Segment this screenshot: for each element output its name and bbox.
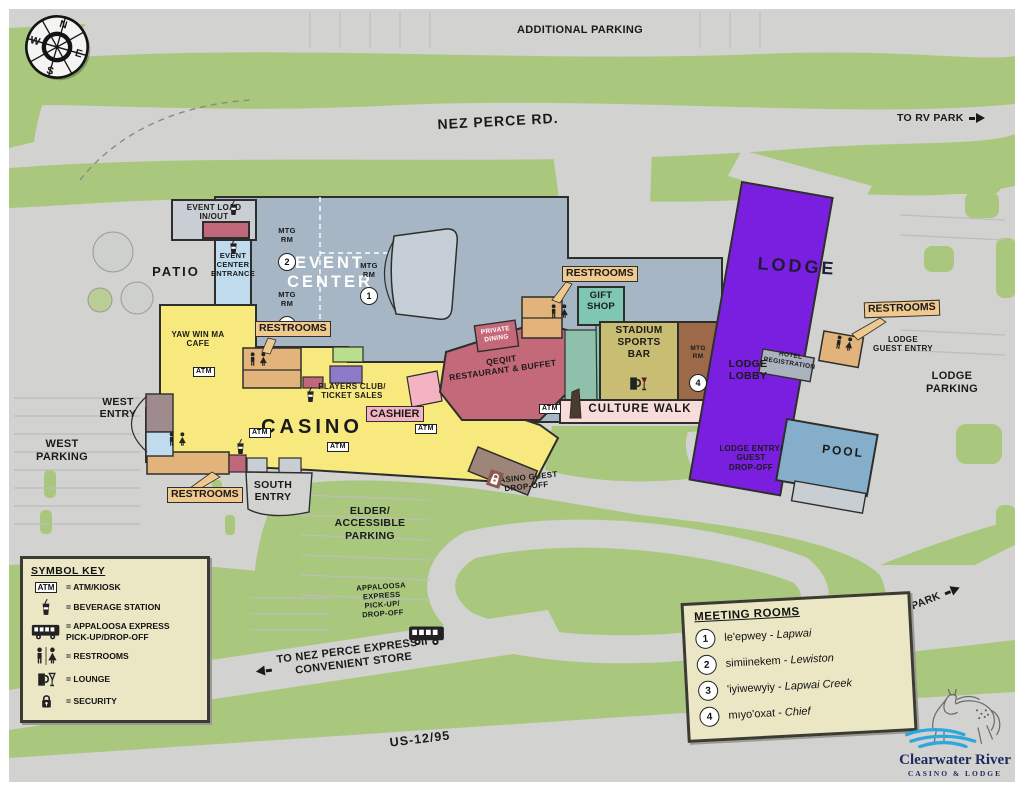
- key-text-security: = SECURITY: [66, 696, 117, 707]
- label-hotel-registration: HOTEL REGISTRATION: [763, 348, 817, 371]
- label-restrooms-center: RESTROOMS: [562, 266, 638, 282]
- logo-title: Clearwater River: [893, 753, 1017, 768]
- restrooms-icon: [832, 334, 856, 353]
- atm-kiosk: ATM: [327, 442, 349, 452]
- mtg-rm-4-number: 4: [689, 374, 707, 392]
- atm-kiosk: ATM: [415, 424, 437, 434]
- room-number-badge: 4: [699, 706, 720, 727]
- room-number-badge: 2: [696, 654, 717, 675]
- room-place-text: Lewiston: [790, 652, 834, 666]
- symbol-key-title: SYMBOL KEY: [31, 565, 199, 577]
- beverage-icon: [235, 438, 246, 455]
- label-additional-parking: ADDITIONAL PARKING: [517, 24, 643, 37]
- restrooms-icon: [166, 432, 188, 447]
- clearwater-logo: Clearwater River CASINO & LODGE: [893, 686, 1017, 778]
- label-private-dining: PRIVATE DINING: [480, 325, 511, 344]
- label-west-parking: WEST PARKING: [36, 438, 88, 464]
- room-place-text: Lapwai: [776, 627, 811, 641]
- atm-kiosk: ATM: [249, 428, 271, 438]
- label-restrooms-lodge: RESTROOMS: [864, 300, 940, 318]
- label-qeqiit-restaurant: QEQIIT RESTAURANT & BUFFET: [447, 348, 557, 383]
- key-row-lounge: = LOUNGE: [31, 670, 199, 688]
- label-lodge: LODGE: [757, 253, 837, 280]
- room-place-text: Chief: [785, 705, 811, 718]
- meeting-rooms-legend: MEETING ROOMS 1 le'epwey - Lapwai 2 simi…: [680, 591, 917, 743]
- room-name: simiinekem - Lewiston: [725, 652, 834, 670]
- label-lodge-lobby: LODGE LOBBY: [729, 358, 768, 383]
- room-place-text: Lapwai Creek: [784, 677, 852, 693]
- label-culture-walk: CULTURE WALK: [588, 403, 691, 417]
- bus-icon: [31, 622, 61, 641]
- room-name: 'iyiwewyiy - Lapwai Creek: [727, 677, 852, 696]
- label-stadium-sports-bar: STADIUM SPORTS BAR: [616, 325, 663, 360]
- meeting-room-row: 3 'iyiwewyiy - Lapwai Creek: [698, 671, 903, 702]
- key-row-bus: = APPALOOSA EXPRESS PICK-UP/DROP-OFF: [31, 621, 199, 642]
- symbol-key-legend: SYMBOL KEY ATM = ATM/KIOSK = BEVERAGE ST…: [20, 556, 210, 723]
- room-name: le'epwey - Lapwai: [724, 627, 812, 644]
- key-row-atm: ATM = ATM/KIOSK: [31, 582, 199, 593]
- label-event-center-entrance: EVENT CENTER ENTRANCE: [211, 252, 255, 279]
- room-number-badge: 3: [698, 680, 719, 701]
- atm-kiosk: ATM: [193, 367, 215, 377]
- room-name: mıyo'oxat - Chief: [728, 705, 811, 721]
- label-mtg-rm-4: MTG RM: [690, 345, 705, 360]
- bus-icon: [408, 623, 446, 647]
- key-text-restrooms: = RESTROOMS: [66, 651, 129, 662]
- arrow-right-icon: [969, 113, 985, 123]
- mtg-rm-1-number: 1: [360, 287, 378, 305]
- key-row-restrooms: = RESTROOMS: [31, 647, 199, 665]
- restrooms-icon: [247, 352, 269, 367]
- label-west-entry: WEST ENTRY: [100, 396, 137, 421]
- key-text-beverage: = BEVERAGE STATION: [66, 602, 160, 613]
- beverage-icon: [305, 386, 316, 403]
- meeting-room-row: 2 simiinekem - Lewiston: [696, 645, 901, 676]
- label-gift-shop: GIFT SHOP: [587, 290, 615, 312]
- beverage-icon: [228, 238, 239, 255]
- logo-subtitle: CASINO & LODGE: [893, 769, 1017, 778]
- lounge-icon: [628, 374, 648, 392]
- label-cashier: CASHIER: [366, 406, 424, 422]
- lounge-icon: [36, 670, 56, 688]
- room-name-text: le'epwey -: [724, 629, 774, 644]
- label-south-entry: SOUTH ENTRY: [254, 479, 292, 504]
- label-cafe: YAW WIN MA CAFE: [172, 330, 225, 349]
- label-casino: CASINO: [261, 416, 363, 440]
- key-text-lounge: = LOUNGE: [66, 674, 110, 685]
- label-nez-perce-rd: NEZ PERCE RD.: [437, 110, 559, 133]
- label-mtg-rm-1: MTG RM: [360, 262, 378, 280]
- label-us-12-95: US-12/95: [389, 728, 451, 750]
- label-patio: PATIO: [152, 264, 200, 279]
- arrow-right-icon: [943, 583, 962, 598]
- label-lodge-guest-entry: LODGE GUEST ENTRY: [873, 335, 933, 354]
- arrow-left-icon: [255, 665, 272, 677]
- label-mtg-rm-3: MTG RM: [278, 291, 296, 309]
- beverage-icon: [228, 199, 239, 216]
- meeting-room-row: 4 mıyo'oxat - Chief: [699, 697, 904, 728]
- label-lodge-parking: LODGE PARKING: [926, 370, 978, 396]
- key-row-security: = SECURITY: [31, 693, 199, 709]
- key-row-beverage: = BEVERAGE STATION: [31, 598, 199, 616]
- restrooms-icon: [548, 304, 570, 319]
- room-name-text: simiinekem -: [725, 655, 787, 670]
- label-appaloosa-pickup: APPALOOSA EXPRESS PICK-UP/ DROP-OFF: [356, 581, 408, 620]
- key-text-bus: = APPALOOSA EXPRESS PICK-UP/DROP-OFF: [66, 621, 170, 642]
- label-players-club: PLAYERS CLUB/ TICKET SALES: [318, 382, 386, 401]
- room-number-badge: 1: [695, 628, 716, 649]
- to-rv-park-top-text: TO RV PARK: [897, 112, 964, 124]
- label-lodge-entry-dropoff: LODGE ENTRY/ GUEST DROP-OFF: [719, 444, 782, 472]
- label-to-nez-perce: TO NEZ PERCE EXPRESS II CONVENIENT STORE: [254, 635, 430, 682]
- label-pool: POOL: [821, 442, 864, 460]
- security-icon: [40, 693, 53, 709]
- atm-kiosk: ATM: [539, 404, 561, 414]
- restrooms-icon: [33, 647, 59, 665]
- label-mtg-rm-2: MTG RM: [278, 227, 296, 245]
- label-elder-parking: ELDER/ ACCESSIBLE PARKING: [335, 505, 406, 542]
- compass-rose: N E S W: [22, 12, 92, 82]
- to-nez-perce-text: TO NEZ PERCE EXPRESS II CONVENIENT STORE: [276, 635, 430, 679]
- beverage-icon: [40, 598, 52, 616]
- key-text-atm: = ATM/KIOSK: [66, 582, 121, 593]
- label-restrooms-southwest: RESTROOMS: [167, 487, 243, 503]
- room-name-text: mıyo'oxat -: [728, 707, 782, 722]
- meeting-room-row: 1 le'epwey - Lapwai: [695, 619, 900, 650]
- horse-waves-icon: [900, 686, 1010, 748]
- label-restrooms-event-center: RESTROOMS: [255, 321, 331, 337]
- atm-icon: ATM: [35, 582, 58, 593]
- label-to-rv-park-top: TO RV PARK: [897, 112, 985, 124]
- room-name-text: 'iyiwewyiy -: [727, 681, 782, 696]
- casino-map: N E S W ADDITIONAL PARKING NEZ PERCE RD.…: [0, 0, 1024, 791]
